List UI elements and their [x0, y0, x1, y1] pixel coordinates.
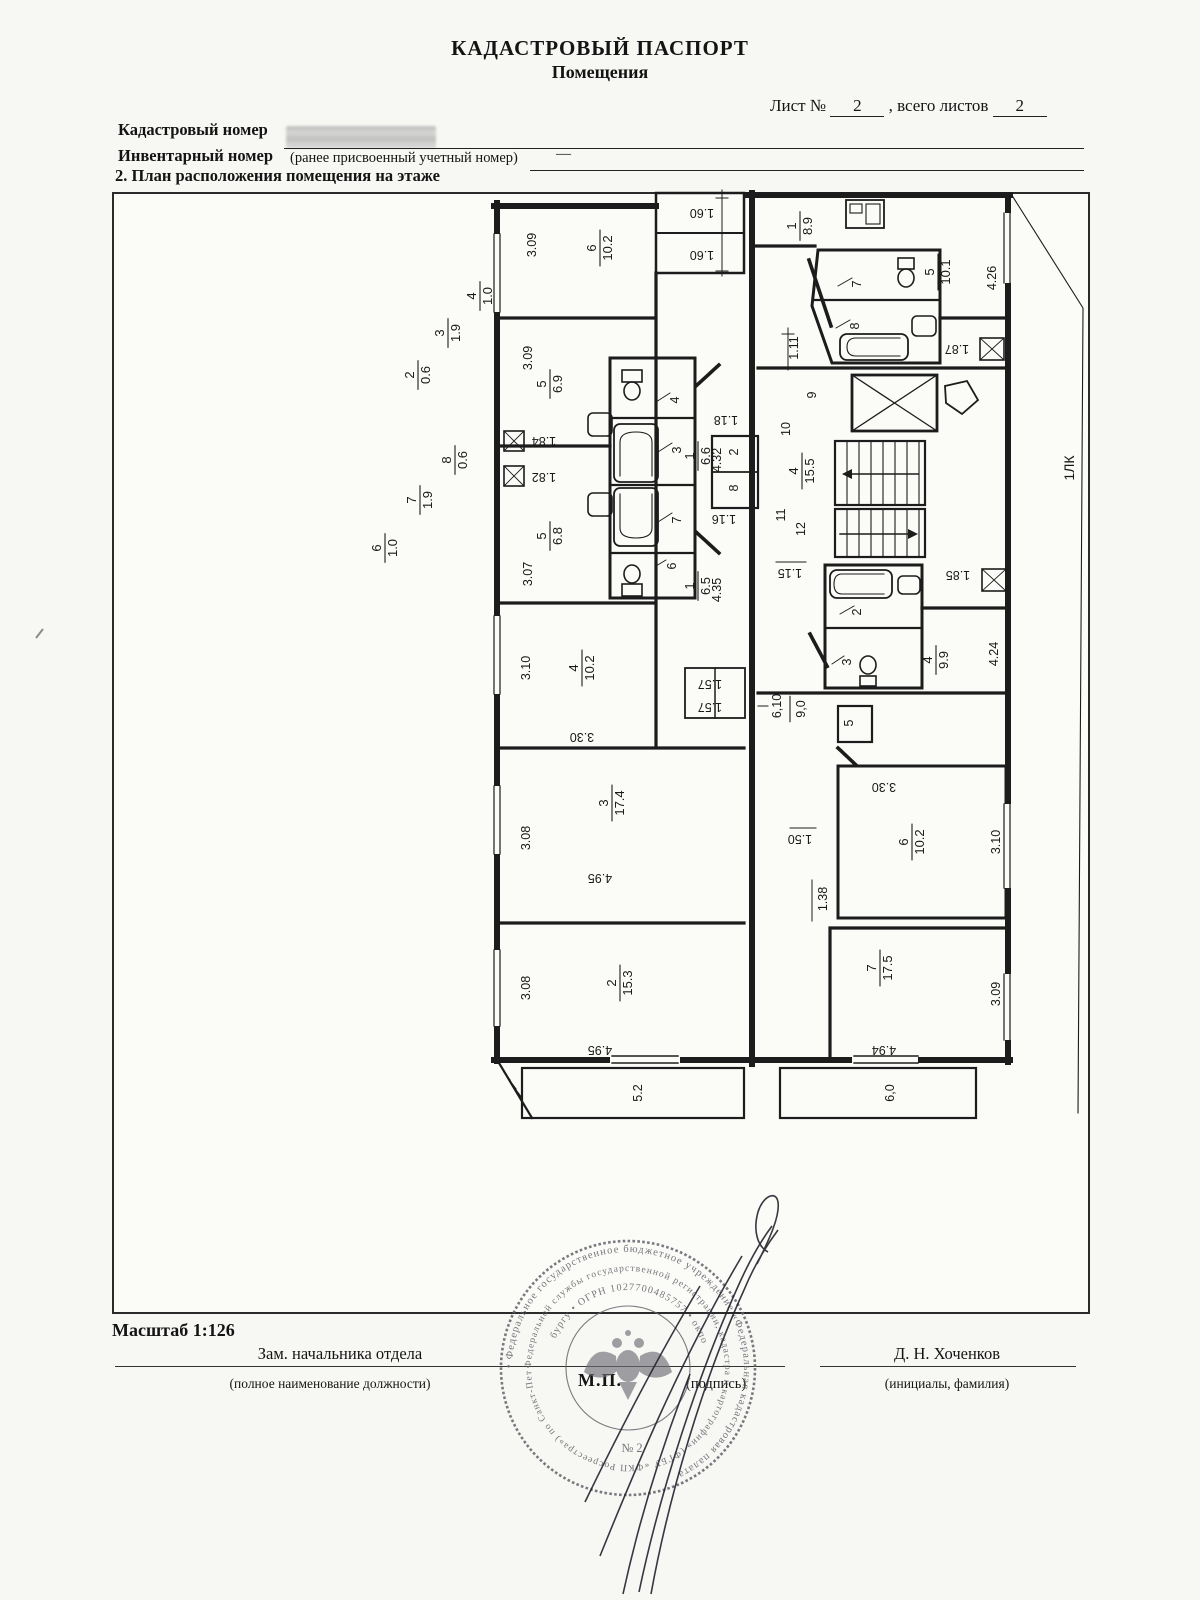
svg-text:1: 1: [682, 452, 697, 459]
name-signature-line: [820, 1366, 1076, 1367]
svg-text:1.57: 1.57: [698, 700, 722, 714]
svg-text:1.9: 1.9: [448, 324, 463, 342]
inventory-number-line: [530, 170, 1084, 171]
svg-text:3: 3: [840, 658, 854, 665]
svg-text:9,0: 9,0: [794, 700, 808, 717]
svg-text:10.1: 10.1: [938, 259, 953, 284]
svg-text:4.35: 4.35: [710, 578, 724, 602]
dimension-label: 1.60: [690, 206, 714, 220]
dimension-label: 3.07: [521, 562, 535, 586]
dimension-label: 3.10: [519, 656, 533, 680]
svg-text:6: 6: [665, 562, 679, 569]
dimension-label: 12: [794, 522, 808, 536]
svg-text:1.82: 1.82: [532, 470, 556, 484]
svg-text:11: 11: [774, 508, 788, 521]
room-area-label: 80.6: [439, 445, 470, 475]
dimension-label: 5: [842, 719, 856, 726]
svg-text:9.9: 9.9: [936, 651, 951, 669]
dimension-label: 2: [727, 448, 741, 455]
cadastral-passport-page: КАДАСТРОВЫЙ ПАСПОРТ Помещения Лист № 2 ,…: [0, 0, 1200, 1600]
svg-text:5: 5: [922, 268, 937, 275]
svg-text:1.85: 1.85: [946, 568, 970, 582]
dimension-label: 3.10: [989, 830, 1003, 854]
dimension-label: 3.30: [872, 780, 896, 794]
svg-text:6,10: 6,10: [770, 694, 784, 718]
svg-text:7: 7: [850, 280, 864, 287]
dimension-label: 1.18: [714, 413, 738, 427]
svg-text:6.8: 6.8: [550, 527, 565, 545]
room-area-label: 56.8: [534, 521, 565, 551]
svg-text:2: 2: [402, 371, 417, 378]
dimension-label: 3.30: [570, 730, 594, 744]
dimension-label: 4.24: [987, 642, 1001, 666]
svg-text:9: 9: [805, 391, 819, 398]
svg-text:8: 8: [439, 456, 454, 463]
dimension-label: 4.35: [710, 578, 724, 602]
floor-plan-drawing: 41.031.920.680.671.961.03.09610.21.601.6…: [360, 188, 1090, 1138]
scale-label: Масштаб 1:126: [112, 1320, 235, 1341]
svg-text:1.87: 1.87: [945, 342, 969, 356]
svg-text:3: 3: [596, 799, 611, 806]
svg-text:0.6: 0.6: [455, 451, 470, 469]
dimension-label: 4.94: [872, 1043, 896, 1057]
dimension-label: 6: [665, 562, 679, 569]
dimension-label: 1ЛК: [1061, 455, 1077, 481]
dimension-label: 2: [850, 608, 864, 615]
dimension-label: 5.2: [631, 1084, 645, 1101]
svg-text:1.15: 1.15: [778, 566, 802, 580]
svg-text:3.09: 3.09: [989, 982, 1003, 1006]
svg-text:1.84: 1.84: [532, 434, 556, 448]
svg-text:4.26: 4.26: [985, 266, 999, 290]
svg-text:4: 4: [566, 664, 581, 671]
dimension-label: 1.16: [712, 512, 736, 526]
room-area-label: 18.9: [784, 211, 815, 241]
svg-text:3.30: 3.30: [872, 780, 896, 794]
svg-text:1: 1: [682, 582, 697, 589]
room-area-label: 20.6: [402, 360, 433, 390]
svg-text:3.30: 3.30: [570, 730, 594, 744]
svg-text:3.07: 3.07: [521, 562, 535, 586]
dimension-label: 9: [805, 391, 819, 398]
room-area-label: 415.5: [786, 453, 817, 490]
floor-plan-labels: 41.031.920.680.671.961.03.09610.21.601.6…: [369, 206, 1077, 1102]
svg-text:1.0: 1.0: [480, 287, 495, 305]
svg-text:7: 7: [864, 964, 879, 971]
signature-note: (подпись): [686, 1376, 746, 1393]
seal-place-label: М.П.: [578, 1370, 622, 1391]
svg-text:2: 2: [727, 448, 741, 455]
svg-text:4: 4: [668, 396, 682, 403]
svg-text:1.18: 1.18: [714, 413, 738, 427]
total-sheets-value: 2: [993, 96, 1047, 117]
svg-text:3.10: 3.10: [519, 656, 533, 680]
room-area-label: 61.0: [369, 533, 400, 563]
dimension-label: 9,0: [790, 696, 808, 722]
dimension-label: 1.15: [778, 566, 802, 580]
dimension-label: 3.08: [519, 976, 533, 1000]
svg-text:3.10: 3.10: [989, 830, 1003, 854]
dimension-label: 1.87: [945, 342, 969, 356]
svg-text:4.94: 4.94: [872, 1043, 896, 1057]
dimension-label: 1.38: [816, 887, 830, 911]
dimension-label: 6,0: [883, 1084, 897, 1101]
svg-text:10.2: 10.2: [582, 655, 597, 680]
document-title: КАДАСТРОВЫЙ ПАСПОРТ: [0, 36, 1200, 61]
svg-text:8.9: 8.9: [800, 217, 815, 235]
svg-text:3.08: 3.08: [519, 976, 533, 1000]
dimension-label: 8: [848, 322, 862, 329]
svg-text:0.6: 0.6: [418, 366, 433, 384]
room-area-label: 610.2: [584, 230, 615, 267]
dimension-label: 4.26: [985, 266, 999, 290]
inventory-number-value: —: [556, 146, 571, 163]
position-signature-line: [115, 1366, 785, 1367]
svg-text:6: 6: [369, 544, 384, 551]
room-area-label: 56.9: [534, 369, 565, 399]
svg-text:4.95: 4.95: [588, 1043, 612, 1057]
svg-text:5: 5: [534, 380, 549, 387]
dimension-label: 3.09: [525, 233, 539, 257]
dimension-label: 4.95: [588, 871, 612, 885]
svg-text:5.2: 5.2: [631, 1084, 645, 1101]
svg-text:2: 2: [604, 979, 619, 986]
svg-text:4: 4: [920, 656, 935, 663]
svg-text:17.4: 17.4: [612, 790, 627, 815]
inventory-number-label: Инвентарный номер: [118, 146, 273, 166]
dimension-label: 3.08: [519, 826, 533, 850]
dimension-label: 1.57: [698, 677, 722, 691]
room-area-label: 49.9: [920, 645, 951, 675]
svg-text:10.2: 10.2: [912, 829, 927, 854]
svg-text:1ЛК: 1ЛК: [1061, 455, 1077, 481]
svg-text:3: 3: [670, 446, 684, 453]
svg-text:1.9: 1.9: [420, 491, 435, 509]
cadastral-number-redacted: [286, 126, 436, 148]
svg-text:15.5: 15.5: [802, 458, 817, 483]
svg-text:1.50: 1.50: [788, 832, 812, 846]
room-area-label: 16.5: [682, 571, 713, 601]
dimension-label: 7: [670, 516, 684, 523]
dimension-label: 1.85: [946, 568, 970, 582]
room-area-label: 510.1: [922, 254, 953, 291]
room-area-label: 215.3: [604, 965, 635, 1002]
svg-text:3: 3: [432, 329, 447, 336]
svg-text:6: 6: [584, 244, 599, 251]
svg-text:5: 5: [534, 532, 549, 539]
dimension-label: 1.57: [698, 700, 722, 714]
svg-text:12: 12: [794, 522, 808, 536]
svg-text:7: 7: [670, 516, 684, 523]
inventory-number-note: (ранее присвоенный учетный номер): [290, 150, 518, 167]
sheet-label: Лист №: [770, 96, 826, 115]
svg-text:17.5: 17.5: [880, 955, 895, 980]
dimension-label: 6,10: [770, 694, 784, 718]
dimension-label: 1.60: [690, 248, 714, 262]
sheet-value: 2: [830, 96, 884, 117]
cadastral-number-line: [284, 148, 1084, 149]
cadastral-number-label: Кадастровый номер: [118, 120, 268, 140]
dimension-label: 8: [727, 484, 741, 491]
dimension-label: 4.32: [710, 448, 724, 472]
dimension-label: 3.09: [521, 346, 535, 370]
svg-text:6,0: 6,0: [883, 1084, 897, 1101]
svg-text:8: 8: [848, 322, 862, 329]
svg-text:4.32: 4.32: [710, 448, 724, 472]
document-subtitle: Помещения: [0, 62, 1200, 83]
svg-text:4: 4: [786, 467, 801, 474]
svg-text:10.2: 10.2: [600, 235, 615, 260]
svg-text:3.09: 3.09: [525, 233, 539, 257]
stamp-number: № 2: [621, 1441, 642, 1455]
sheet-number-row: Лист № 2 , всего листов 2: [770, 96, 1047, 117]
svg-text:15.3: 15.3: [620, 970, 635, 995]
dimension-label: 11: [774, 508, 788, 521]
svg-text:1.38: 1.38: [816, 887, 830, 911]
room-area-label: 610.2: [896, 824, 927, 861]
room-area-label: 717.5: [864, 950, 895, 987]
dimension-label: 1.50: [788, 832, 812, 846]
dimension-label: 1.11: [787, 336, 801, 359]
svg-text:10: 10: [779, 422, 793, 436]
pen-mark: [36, 629, 43, 638]
svg-text:1.60: 1.60: [690, 248, 714, 262]
svg-text:4.95: 4.95: [588, 871, 612, 885]
svg-text:1.57: 1.57: [698, 677, 722, 691]
position-title: Зам. начальника отдела: [140, 1344, 540, 1364]
svg-text:4: 4: [464, 292, 479, 299]
dimension-label: 3: [670, 446, 684, 453]
official-name: Д. Н. Хоченков: [822, 1344, 1072, 1364]
room-area-label: 71.9: [404, 485, 435, 515]
dimension-label: 4: [668, 396, 682, 403]
dimension-label: 1.82: [532, 470, 556, 484]
svg-text:1.60: 1.60: [690, 206, 714, 220]
dimension-label: 1.84: [532, 434, 556, 448]
svg-text:1.16: 1.16: [712, 512, 736, 526]
svg-text:1: 1: [784, 222, 799, 229]
svg-text:1.0: 1.0: [385, 539, 400, 557]
svg-text:5: 5: [842, 719, 856, 726]
svg-text:8: 8: [727, 484, 741, 491]
dimension-label: 3: [840, 658, 854, 665]
svg-text:2: 2: [850, 608, 864, 615]
dimension-label: 4.95: [588, 1043, 612, 1057]
svg-text:6: 6: [896, 838, 911, 845]
room-area-label: 16.6: [682, 441, 713, 471]
svg-text:6.9: 6.9: [550, 375, 565, 393]
room-area-label: 317.4: [596, 785, 627, 822]
room-area-label: 410.2: [566, 650, 597, 687]
position-note: (полное наименование должности): [150, 1376, 510, 1392]
name-note: (инициалы, фамилия): [822, 1376, 1072, 1392]
dimension-label: 7: [850, 280, 864, 287]
svg-text:7: 7: [404, 496, 419, 503]
svg-text:1.11: 1.11: [787, 336, 801, 359]
svg-text:3.08: 3.08: [519, 826, 533, 850]
svg-text:3.09: 3.09: [521, 346, 535, 370]
total-sheets-label: , всего листов: [889, 96, 989, 115]
svg-text:4.24: 4.24: [987, 642, 1001, 666]
dimension-label: 10: [779, 422, 793, 436]
room-area-label: 31.9: [432, 318, 463, 348]
section-2-title: 2. План расположения помещения на этаже: [115, 166, 440, 186]
dimension-label: 3.09: [989, 982, 1003, 1006]
